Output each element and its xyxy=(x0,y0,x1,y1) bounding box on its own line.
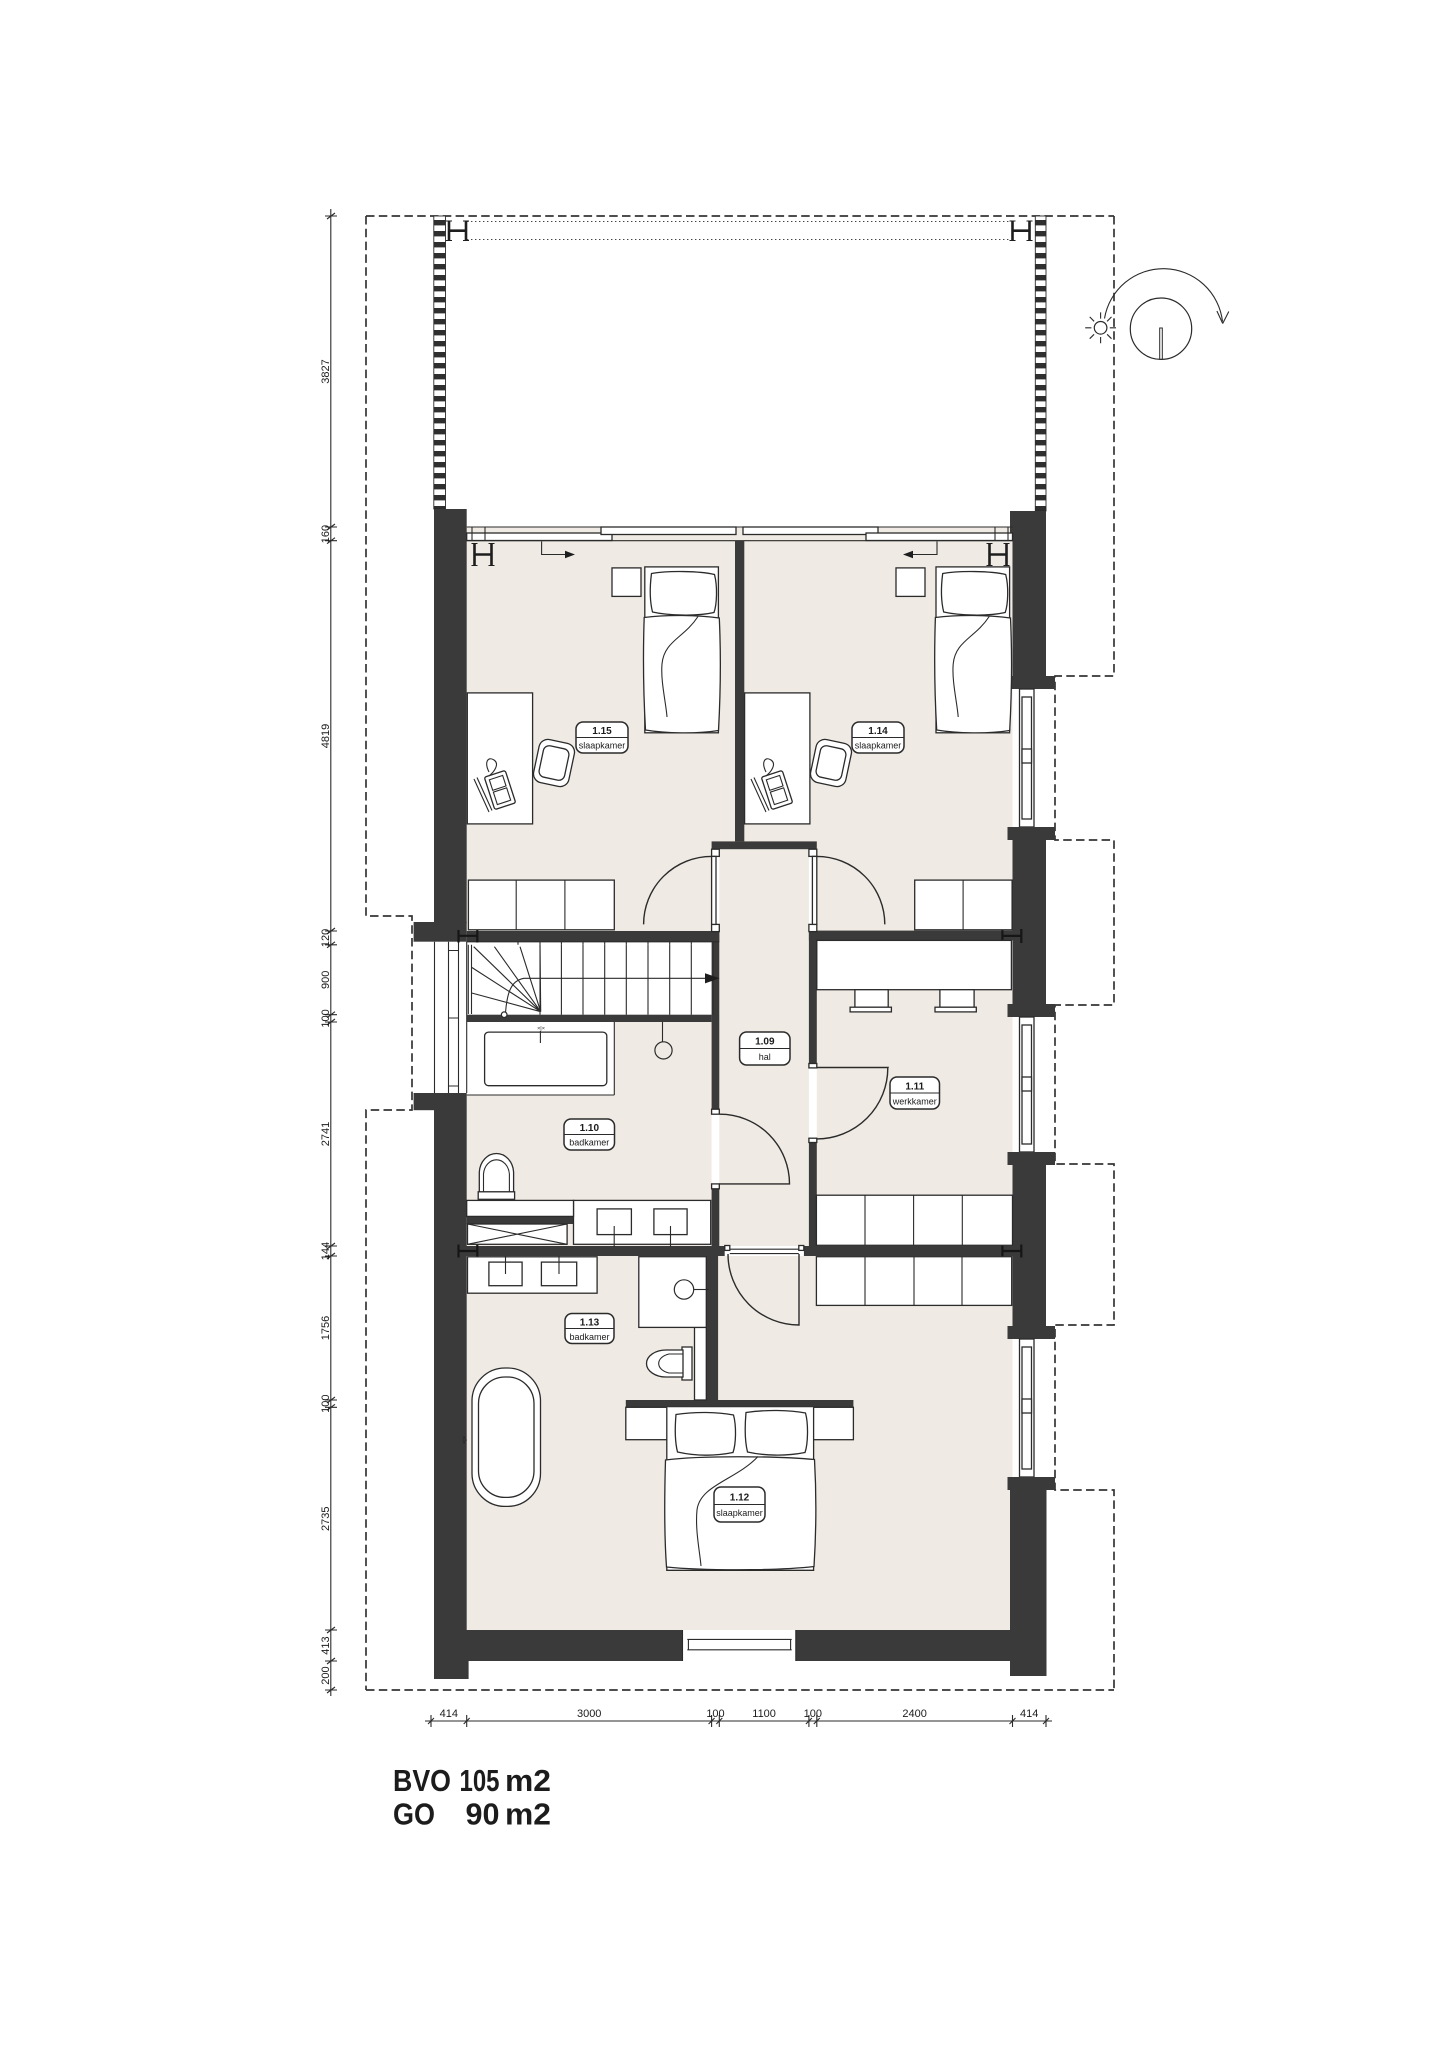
svg-text:200: 200 xyxy=(320,1666,332,1684)
svg-text:slaapkamer: slaapkamer xyxy=(716,1508,763,1518)
svg-text:GO90m2: GO90m2 xyxy=(393,1798,551,1832)
svg-text:slaapkamer: slaapkamer xyxy=(855,741,902,751)
svg-text:1756: 1756 xyxy=(320,1316,332,1340)
svg-text:100: 100 xyxy=(804,1708,822,1720)
svg-text:3000: 3000 xyxy=(577,1708,601,1720)
svg-text:160: 160 xyxy=(320,525,332,543)
svg-text:werkkamer: werkkamer xyxy=(892,1097,937,1107)
svg-text:1.11: 1.11 xyxy=(905,1082,924,1093)
svg-text:badkamer: badkamer xyxy=(569,1138,609,1148)
svg-text:120: 120 xyxy=(320,929,332,947)
svg-text:3827: 3827 xyxy=(320,359,332,383)
svg-text:100: 100 xyxy=(706,1708,724,1720)
svg-text:144: 144 xyxy=(320,1242,332,1260)
svg-text:1.14: 1.14 xyxy=(868,726,888,737)
svg-text:414: 414 xyxy=(1020,1708,1038,1720)
svg-text:1100: 1100 xyxy=(752,1708,776,1720)
svg-text:1.15: 1.15 xyxy=(592,726,612,737)
svg-text:hal: hal xyxy=(759,1052,771,1062)
svg-text:×|×: ×|× xyxy=(462,1436,468,1444)
svg-text:100: 100 xyxy=(320,1009,332,1027)
svg-text:1.12: 1.12 xyxy=(730,1493,750,1504)
svg-text:100: 100 xyxy=(320,1395,332,1413)
svg-text:1.10: 1.10 xyxy=(580,1123,600,1134)
svg-text:badkamer: badkamer xyxy=(569,1332,609,1342)
svg-text:4819: 4819 xyxy=(320,724,332,748)
svg-text:414: 414 xyxy=(440,1708,458,1720)
svg-text:2400: 2400 xyxy=(902,1708,926,1720)
svg-text:slaapkamer: slaapkamer xyxy=(579,741,626,751)
svg-text:413: 413 xyxy=(320,1636,332,1654)
svg-text:1.13: 1.13 xyxy=(580,1318,600,1329)
svg-text:BVO105m2: BVO105m2 xyxy=(393,1764,551,1798)
svg-text:×|×: ×|× xyxy=(537,1026,545,1032)
svg-text:900: 900 xyxy=(320,971,332,989)
svg-text:2735: 2735 xyxy=(320,1506,332,1530)
svg-text:1.09: 1.09 xyxy=(755,1037,775,1048)
svg-text:2741: 2741 xyxy=(320,1122,332,1146)
